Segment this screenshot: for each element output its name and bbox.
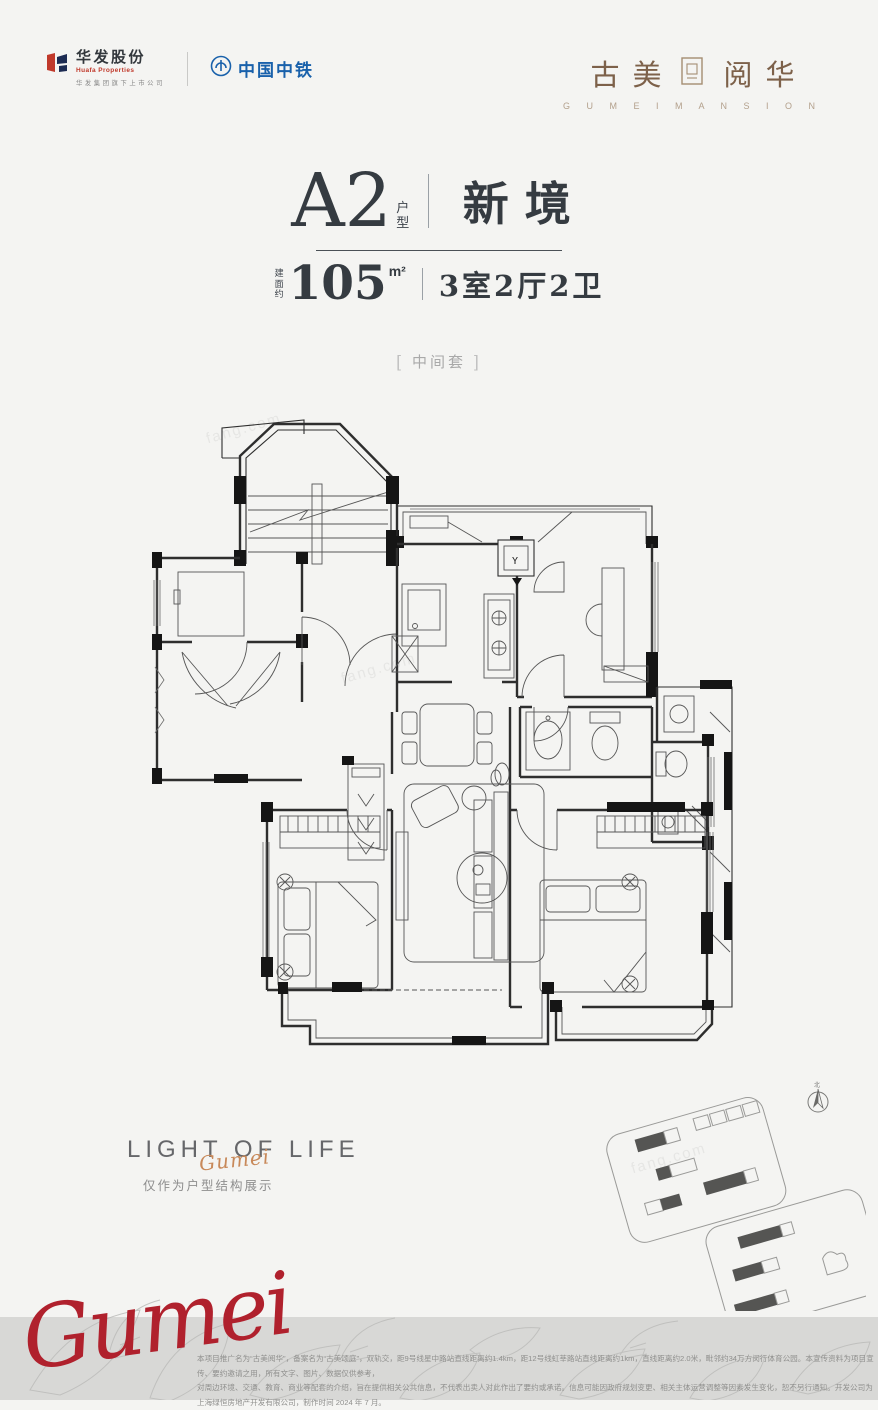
plan-note: 仅作为户型结构展示 (143, 1175, 360, 1194)
title-divider (428, 174, 429, 228)
disclaimer-line-1: 本项目推广名为“古美阅华”，备案名为“古美颂庭”，双轨交，距9号线星中路站直线距… (197, 1352, 875, 1381)
huafa-logo-icon (46, 51, 69, 74)
slogan-block: LIGHT OF LIFE Gumei 仅作为户型结构展示 (127, 1136, 360, 1194)
floorplan-drawing: Y (152, 412, 737, 1067)
entry-hall (302, 544, 397, 712)
unit-title-block: A2 户型 新境 建面约 105 m² 3室2厅2卫 [中间套] (0, 168, 878, 372)
equipment-room (152, 552, 308, 780)
huafa-name-en: Huafa Properties (76, 67, 165, 74)
unit-code: A2 (291, 169, 392, 233)
area-value: 105 (289, 264, 387, 304)
crec-emblem-icon (210, 55, 232, 82)
stairwell (222, 420, 399, 566)
unit-type-label: 户型 (396, 200, 410, 230)
shaft-label: Y (512, 556, 518, 567)
side-platform (657, 680, 732, 1007)
living-room (396, 707, 544, 970)
tag-bracket-open: [ (388, 352, 412, 371)
brand-cn-left: 古美 (577, 52, 674, 94)
brand-en: G U M E I M A N S I O N (563, 101, 822, 111)
study-room (517, 544, 658, 697)
entry-cabinet (342, 712, 392, 860)
tag-bracket-close: ] (466, 352, 490, 371)
bedroom-1 (261, 802, 392, 990)
duct-shaft: Y (498, 540, 534, 586)
position-tag: [中间套] (0, 351, 878, 372)
huafa-name: 华发股份 (76, 50, 165, 65)
foyer (152, 652, 302, 784)
huafa-logo: 华发股份 Huafa Properties 华发集团旗下上市公司 (46, 50, 165, 87)
title-rule (316, 250, 562, 251)
brand-cn-right: 阅华 (710, 52, 807, 94)
dining-area (402, 704, 492, 766)
tag-text: 中间套 (412, 354, 466, 371)
header-divider (187, 52, 188, 86)
brand-seal-icon (680, 56, 704, 91)
rooms-label: 3室2厅2卫 (439, 263, 605, 305)
unit-name: 新境 (447, 168, 587, 234)
subtitle-divider (422, 268, 423, 300)
bathroom-1 (520, 707, 652, 777)
developer-logos: 华发股份 Huafa Properties 华发集团旗下上市公司 中国中铁 (46, 50, 314, 87)
disclaimer-line-2: 对周边环境、交通、教育、商业等配套的介绍，旨在提供相关公共信息，不代表出卖人对此… (197, 1381, 875, 1410)
crec-logo: 中国中铁 (210, 55, 314, 82)
huafa-tagline: 华发集团旗下上市公司 (76, 78, 165, 87)
area-prefix: 建面约 (274, 268, 285, 300)
master-bedroom (510, 802, 713, 1007)
brand-logo: 古美 阅华 G U M E I M A N S I O N (563, 52, 822, 111)
balcony (278, 982, 714, 1045)
compass-icon: 北 (808, 1081, 828, 1112)
area-unit: m² (389, 263, 406, 279)
crec-name: 中国中铁 (238, 56, 314, 81)
compass-label: 北 (814, 1081, 820, 1089)
disclaimer: 本项目推广名为“古美阅华”，备案名为“古美颂庭”，双轨交，距9号线星中路站直线距… (197, 1352, 875, 1410)
poster-page: 华发股份 Huafa Properties 华发集团旗下上市公司 中国中铁 古美 (0, 0, 878, 1400)
